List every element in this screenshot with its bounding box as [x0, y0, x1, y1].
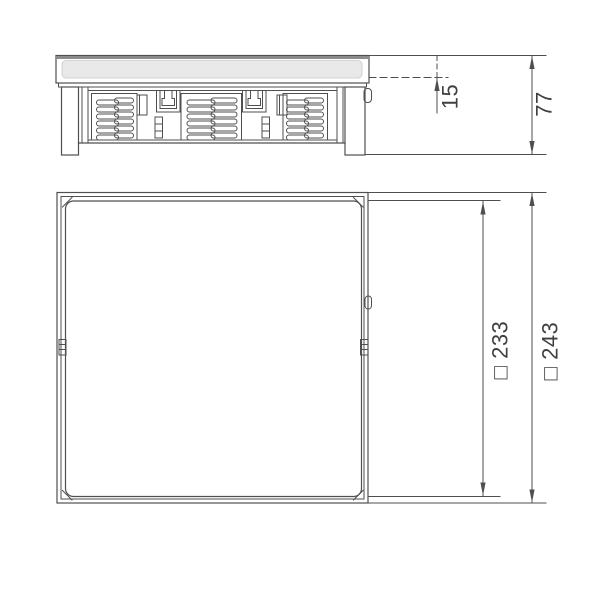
arrow-up-icon [529, 56, 534, 69]
arrow-down-icon [529, 490, 534, 503]
cover-plate [66, 201, 362, 497]
flange-inlay [62, 61, 362, 79]
right-leg [345, 87, 365, 155]
corner-tick [63, 198, 73, 208]
outer-frame [57, 193, 368, 504]
dimension-243-label: □ 243 [538, 322, 563, 381]
arrow-up-icon [529, 193, 534, 206]
side-view: 15 77 [56, 56, 557, 156]
dimension-15-label: 15 [438, 84, 463, 109]
arrow-up-icon [480, 202, 485, 215]
rib [277, 95, 287, 115]
dimension-77-label: 77 [532, 91, 557, 116]
edge-clip [262, 117, 270, 138]
dimension-233: □ 233 [368, 201, 513, 497]
edge-clip [155, 117, 163, 138]
left-leg [62, 87, 79, 155]
rib [137, 95, 147, 115]
arrow-down-icon [529, 141, 534, 154]
technical-drawing: 15 77 [0, 0, 600, 600]
dimension-15: 15 [365, 56, 546, 155]
dimension-233-label: □ 233 [488, 321, 513, 380]
dimension-77: 77 [529, 56, 556, 154]
arrow-down-icon [480, 483, 485, 496]
plan-view: □ 233 □ 243 [57, 193, 563, 504]
dimension-243: □ 243 [368, 193, 563, 504]
frame-inner-edge [61, 197, 364, 500]
corner-tick [354, 198, 364, 208]
